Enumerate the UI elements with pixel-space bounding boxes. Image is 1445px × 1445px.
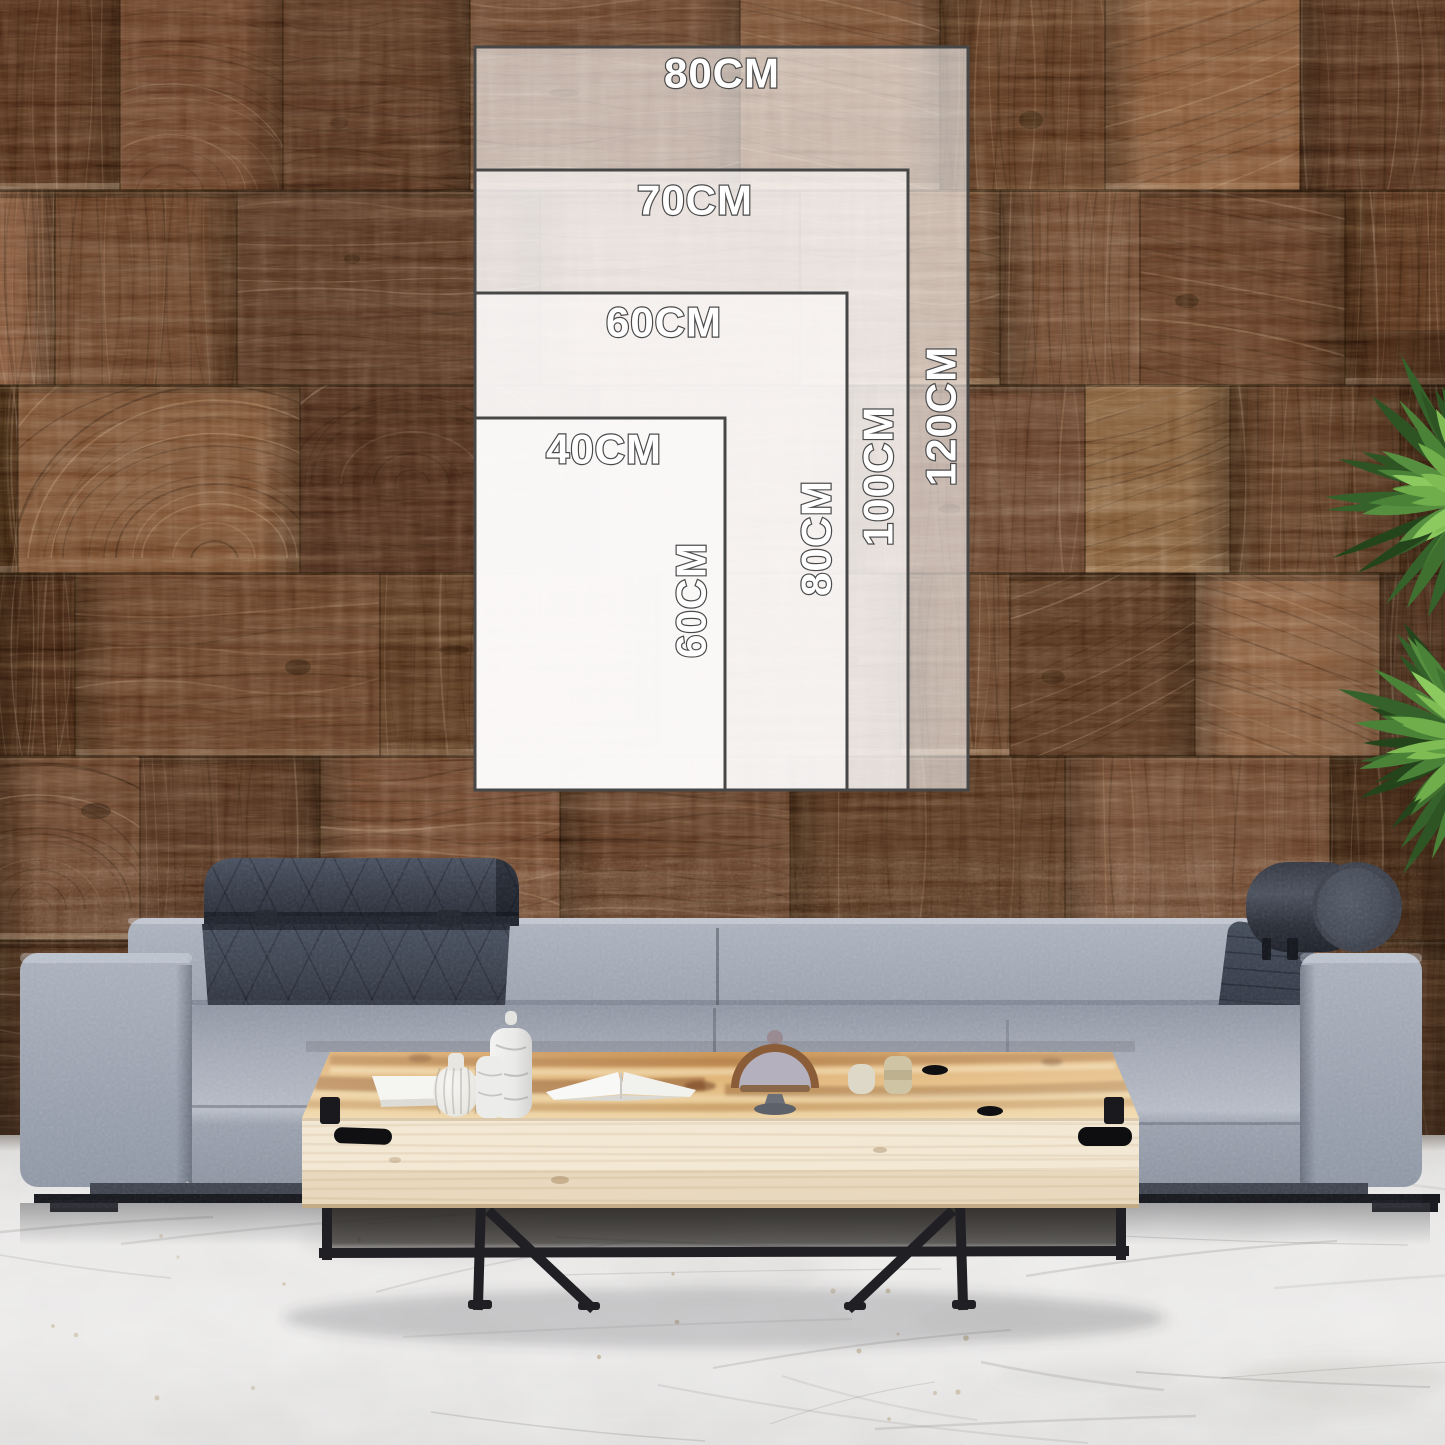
- svg-text:60CM: 60CM: [606, 299, 722, 346]
- svg-text:80CM: 80CM: [664, 50, 780, 97]
- svg-text:100CM: 100CM: [855, 406, 902, 546]
- svg-text:40CM: 40CM: [546, 426, 662, 473]
- svg-text:60CM: 60CM: [668, 542, 715, 658]
- svg-text:80CM: 80CM: [793, 480, 840, 596]
- svg-text:70CM: 70CM: [637, 177, 753, 224]
- svg-text:120CM: 120CM: [918, 346, 965, 486]
